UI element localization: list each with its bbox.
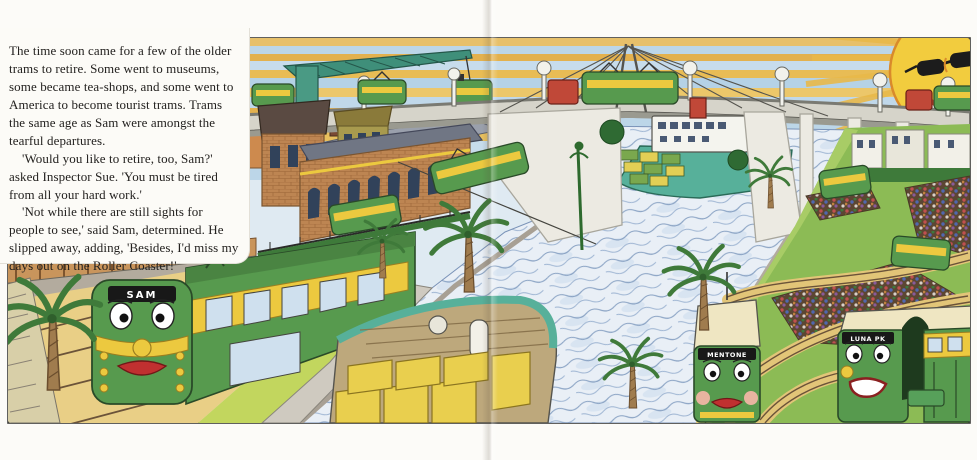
park-bench <box>908 390 944 406</box>
park-tram-lunapark: LUNA PK <box>838 306 972 422</box>
story-paragraph-2: 'Would you like to retire, too, Sam?' as… <box>9 150 241 204</box>
story-text-panel: The time soon came for a few of the olde… <box>0 28 250 264</box>
park-tram-a <box>818 165 871 200</box>
mentone-destination-text: MENTONE <box>707 351 747 359</box>
round-tree <box>600 120 624 144</box>
round-tree <box>728 150 748 170</box>
park-tram-b <box>891 236 951 271</box>
book-page: SAM <box>0 0 977 460</box>
story-paragraph-1: The time soon came for a few of the olde… <box>9 42 241 150</box>
sam-destination-text: SAM <box>127 290 158 301</box>
lunapark-body <box>924 328 972 422</box>
ship-funnel <box>690 98 706 118</box>
story-paragraph-3: 'Not while there are still sights for pe… <box>9 203 241 275</box>
